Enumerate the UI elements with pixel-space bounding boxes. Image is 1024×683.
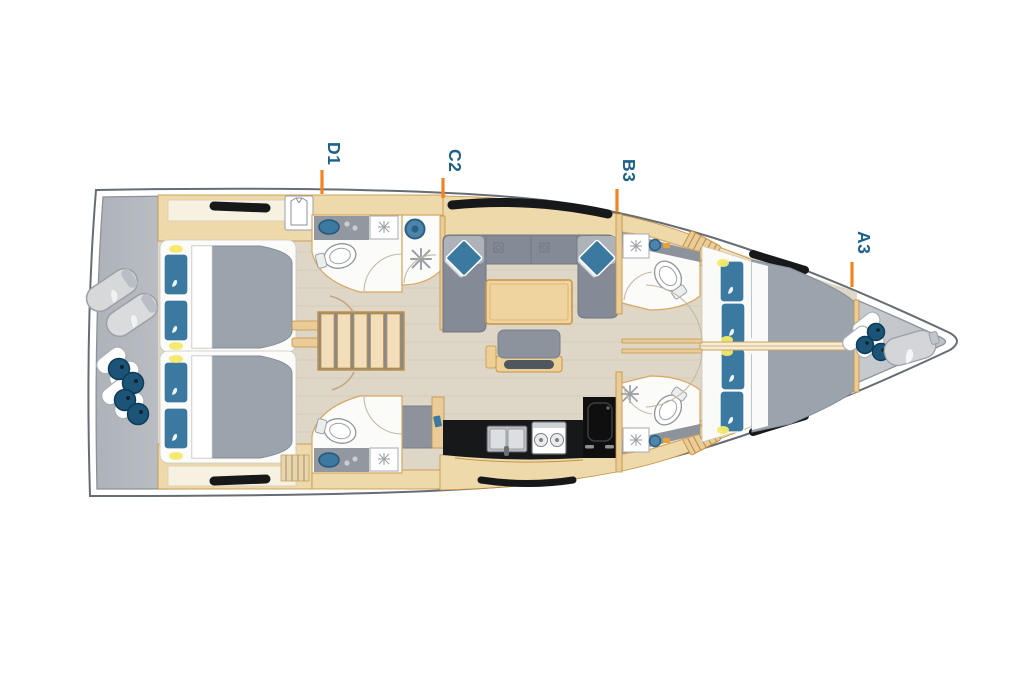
cabin-label-d1: D1 [324, 142, 344, 165]
bed-sheet [192, 246, 212, 348]
cabin-label-c2: C2 [445, 149, 465, 172]
yacht-deck-plan: D1 C2 B3 A3 [0, 0, 1024, 683]
aft-starboard-cabin [160, 351, 296, 463]
window-galley-starboard [481, 480, 573, 484]
saloon-table [486, 280, 572, 324]
bed-sheet [192, 356, 212, 458]
reading-light [169, 245, 183, 253]
reading-light [717, 426, 729, 434]
louver-panel [281, 455, 309, 481]
pillow [164, 362, 188, 403]
galley-sink [487, 426, 527, 456]
bulkhead [616, 214, 622, 314]
bulkhead [616, 372, 622, 472]
reading-light [169, 452, 183, 460]
tv-panel [504, 360, 554, 369]
pillow [164, 300, 188, 341]
washbasin [650, 436, 661, 447]
stove [532, 422, 566, 454]
hatch-aft-port [214, 206, 266, 208]
reading-light [717, 259, 729, 267]
cabin-label-a3: A3 [854, 231, 874, 254]
pillow [164, 254, 188, 295]
reading-light [169, 355, 183, 363]
wardrobe [285, 196, 313, 230]
washbasin [319, 220, 339, 234]
washbasin [650, 240, 661, 251]
washbasin [319, 453, 339, 467]
pillow [720, 261, 744, 302]
reading-light [169, 342, 183, 350]
hatch-aft-starboard [214, 479, 266, 481]
shower-head-icon [410, 248, 432, 270]
pillow [164, 408, 188, 449]
fridge [583, 397, 616, 458]
deck-plan-canvas: D1 C2 B3 A3 [0, 0, 1024, 683]
pillow [720, 391, 744, 432]
cabin-label-b3: B3 [619, 159, 639, 182]
